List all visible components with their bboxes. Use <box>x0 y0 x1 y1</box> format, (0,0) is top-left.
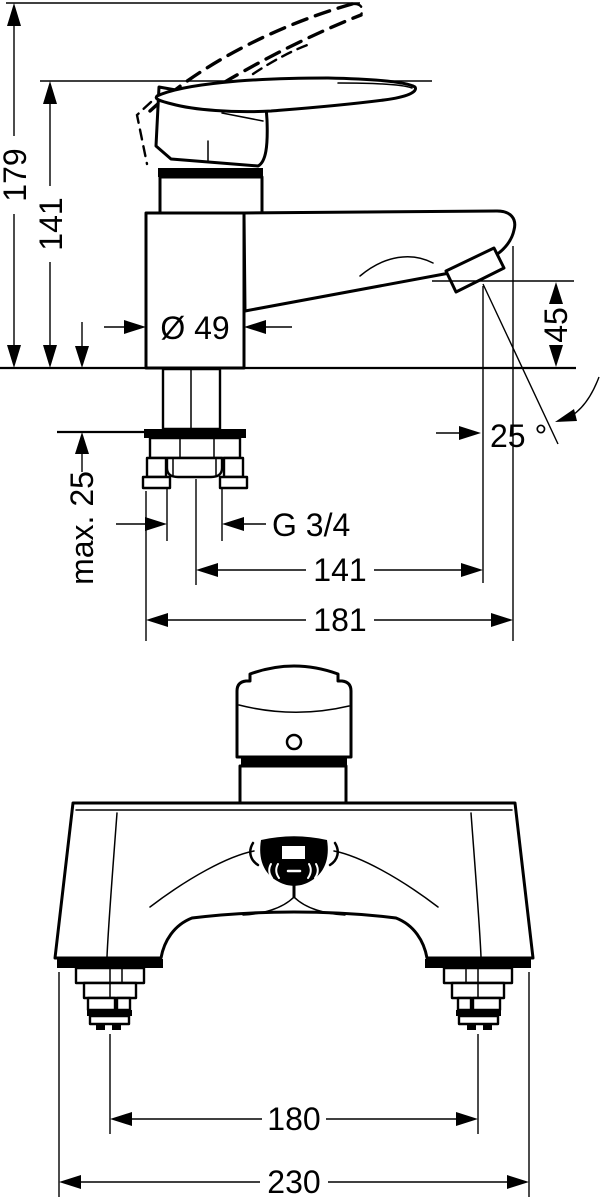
dim-outlet-height-label: 45 <box>538 307 574 343</box>
left-screw <box>147 458 166 477</box>
side-view: 179 141 <box>0 3 599 641</box>
thread-connector <box>167 458 222 477</box>
left-foot-washer <box>57 959 163 968</box>
front-view: 180 230 <box>55 666 533 1200</box>
right-screw <box>224 458 243 477</box>
dim-spout-reach-label: 141 <box>313 552 366 588</box>
knob-neck <box>240 766 346 803</box>
dim-stream-angle: 25 ° <box>436 284 599 583</box>
right-screw-foot <box>220 477 247 488</box>
left-screw-foot <box>143 477 170 488</box>
dim-total-depth-label: 181 <box>313 602 366 638</box>
left-shank-assembly <box>76 968 144 1030</box>
dim-stream-angle-label: 25 ° <box>490 418 547 454</box>
lever-raised-tip-dashed <box>352 4 362 15</box>
dim-body-diameter-label: Ø 49 <box>160 310 229 346</box>
knob-pin-hole <box>287 735 301 749</box>
faucet-neck <box>160 177 262 213</box>
technical-drawing-sheet: 179 141 <box>0 0 602 1200</box>
washer <box>144 429 246 438</box>
dim-total-height-label: 179 <box>0 148 33 201</box>
right-foot-washer <box>425 959 531 968</box>
dim-thread-size-label: G 3/4 <box>272 507 350 543</box>
faucet-dimension-drawing: 179 141 <box>0 0 602 1200</box>
dim-thread-size: G 3/4 <box>116 489 350 543</box>
dim-shank-distance: 180 <box>110 1034 478 1137</box>
lever-raised-edge-dashed <box>253 43 313 74</box>
dim-spout-height-label: 141 <box>33 197 69 250</box>
dim-max-deck-thickness: max. 25 <box>64 322 100 585</box>
dim-outlet-height: 45 <box>432 281 574 367</box>
diverter-knob <box>281 845 306 860</box>
dim-spout-height: 141 <box>33 81 69 368</box>
dim-body-diameter: Ø 49 <box>104 310 292 346</box>
dim-shank-distance-label: 180 <box>267 1101 320 1137</box>
dim-max-deck-label: max. 25 <box>64 471 100 585</box>
dim-overall-width-label: 230 <box>267 1164 320 1200</box>
joint-ring <box>158 168 263 177</box>
right-shank-assembly <box>444 968 512 1030</box>
mounting-nut <box>150 438 240 458</box>
dim-total-height: 179 <box>0 3 33 368</box>
